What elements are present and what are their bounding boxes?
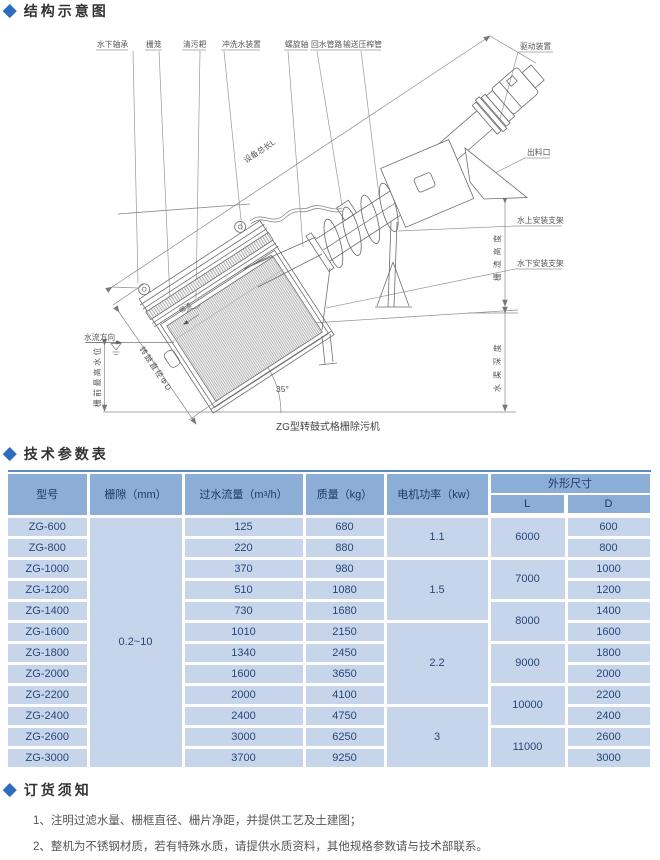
svg-text:设备总长L: 设备总长L: [242, 137, 278, 165]
svg-text:清污耙: 清污耙: [183, 39, 207, 49]
svg-text:输送压榨管: 输送压榨管: [343, 39, 382, 49]
svg-text:驱动装置: 驱动装置: [520, 41, 551, 51]
svg-text:栅笼: 栅笼: [146, 39, 162, 49]
svg-text:水流方向: 水流方向: [84, 332, 115, 342]
svg-text:水渠深度: 水渠深度: [492, 339, 502, 392]
svg-text:栅前最高水位: 栅前最高水位: [92, 345, 102, 407]
svg-text:出料口: 出料口: [527, 147, 550, 157]
svg-text:ZG型转鼓式格栅除污机: ZG型转鼓式格栅除污机: [276, 420, 380, 433]
svg-text:35°: 35°: [276, 384, 289, 394]
svg-text:水下安装支架: 水下安装支架: [517, 258, 564, 268]
svg-text:栅渣高度: 栅渣高度: [492, 230, 502, 281]
svg-text:螺旋轴: 螺旋轴: [285, 39, 309, 49]
svg-text:回水管路: 回水管路: [311, 39, 342, 49]
svg-text:冲洗水装置: 冲洗水装置: [222, 39, 261, 49]
svg-text:水下轴承: 水下轴承: [97, 39, 128, 49]
svg-text:转鼓直径ΦD: 转鼓直径ΦD: [137, 345, 174, 394]
svg-text:水上安装支架: 水上安装支架: [517, 215, 564, 225]
